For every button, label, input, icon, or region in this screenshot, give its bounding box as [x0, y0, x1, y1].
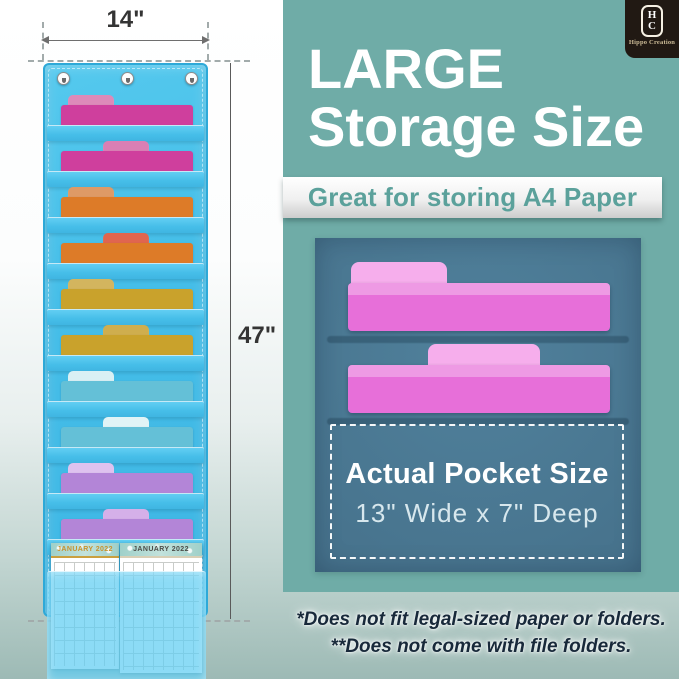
feature-banner: Great for storing A4 Paper: [283, 177, 662, 218]
inset-pocket-seam: [327, 336, 629, 343]
calendar-month-right: JANUARY 2022: [120, 543, 202, 558]
pocket-front: [47, 263, 204, 279]
heading-line-2: Storage Size: [308, 98, 644, 156]
grommet-eyelet: [185, 72, 198, 85]
extension-line-right: [207, 22, 209, 60]
pocket-front: [47, 355, 204, 371]
main-heading: LARGE Storage Size: [308, 40, 644, 156]
inset-folder-center-tab: [348, 344, 610, 414]
pocket-front: [47, 217, 204, 233]
pocket-front: [47, 447, 204, 463]
pocket-size-callout: Actual Pocket Size 13" Wide x 7" Deep: [330, 424, 624, 559]
inset-folder-body: [348, 283, 610, 331]
info-panel: H C Hippo Creation LARGE Storage Size Gr…: [283, 0, 679, 592]
pocket-front: [47, 171, 204, 187]
pocket-chart-organizer: JANUARY 2022 JANUARY 2022: [43, 63, 208, 617]
pocket-size-inset: Actual Pocket Size 13" Wide x 7" Deep: [315, 238, 641, 572]
pocket-front: [47, 125, 204, 141]
feature-banner-text: Great for storing A4 Paper: [308, 182, 637, 213]
pocket-front: [47, 493, 204, 509]
pocket-front: [47, 401, 204, 417]
inset-folder-body: [348, 365, 610, 413]
width-arrow-line: [47, 40, 204, 41]
footnote-line-2: **Does not come with file folders.: [283, 633, 679, 660]
width-dimension-label: 14": [43, 6, 208, 34]
grommet-eyelet: [57, 72, 70, 85]
pocket-size-title: Actual Pocket Size: [332, 458, 622, 491]
grommet-eyelet: [121, 72, 134, 85]
extension-line-top: [28, 60, 250, 62]
calendar-pocket-front: [47, 571, 206, 679]
calendar-month-left: JANUARY 2022: [51, 543, 119, 558]
height-dimension-line: [230, 63, 231, 619]
height-dimension-label: 47": [238, 322, 276, 350]
calendar-pocket: JANUARY 2022 JANUARY 2022: [51, 543, 202, 676]
pocket-front: [47, 309, 204, 325]
extension-line-left: [42, 22, 44, 60]
footnote-line-1: *Does not fit legal-sized paper or folde…: [283, 606, 679, 633]
product-infographic: 14" 47" JANUARY 2022 JANUARY 2022 H C: [0, 0, 679, 679]
pocket-size-subtitle: 13" Wide x 7" Deep: [332, 498, 622, 529]
heading-line-1: LARGE: [308, 40, 644, 98]
footnotes: *Does not fit legal-sized paper or folde…: [283, 606, 679, 660]
inset-folder-left-tab: [348, 262, 610, 332]
logo-initial-bottom: C: [648, 21, 656, 32]
logo-monogram-frame: H C: [641, 5, 663, 37]
